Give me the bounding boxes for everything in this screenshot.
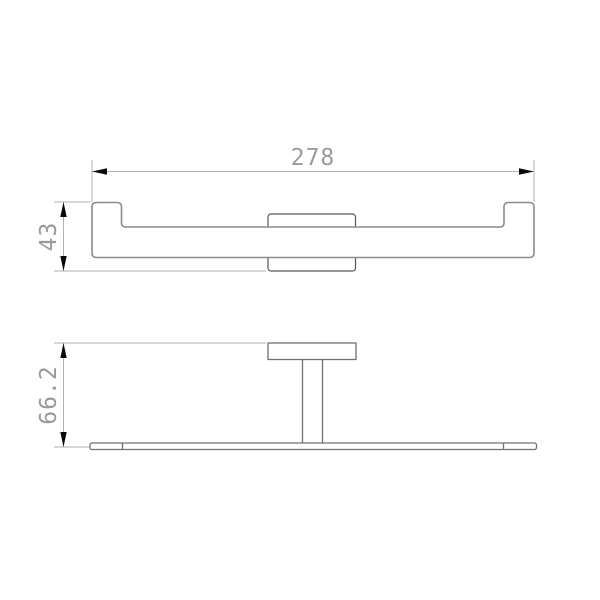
front-bar-group	[92, 203, 534, 258]
drawing-canvas: 278 43 66.2	[0, 0, 600, 600]
front-view	[92, 203, 534, 272]
height-arrow-down-icon	[60, 256, 66, 271]
width-arrow-right-icon	[519, 168, 534, 174]
height-arrow-up-icon	[60, 202, 66, 217]
plan-mounting-plate	[268, 343, 356, 360]
plan-shapes-group	[90, 343, 537, 450]
front-bar-outline	[92, 203, 534, 258]
width-arrow-left-icon	[92, 168, 107, 174]
technical-drawing: 278 43 66.2	[0, 0, 600, 600]
plan-view	[90, 343, 537, 450]
depth-arrow-down-icon	[60, 432, 66, 447]
depth-dimension-label: 66.2	[36, 365, 62, 424]
dimension-lines-group	[54, 160, 534, 447]
height-dimension-label: 43	[36, 222, 62, 252]
dimension-labels-group: 278 43 66.2	[36, 145, 335, 425]
depth-arrow-up-icon	[60, 343, 66, 358]
plan-bar-slab	[90, 443, 537, 450]
width-dimension-label: 278	[291, 145, 336, 171]
dimension-arrows-group	[60, 168, 534, 447]
